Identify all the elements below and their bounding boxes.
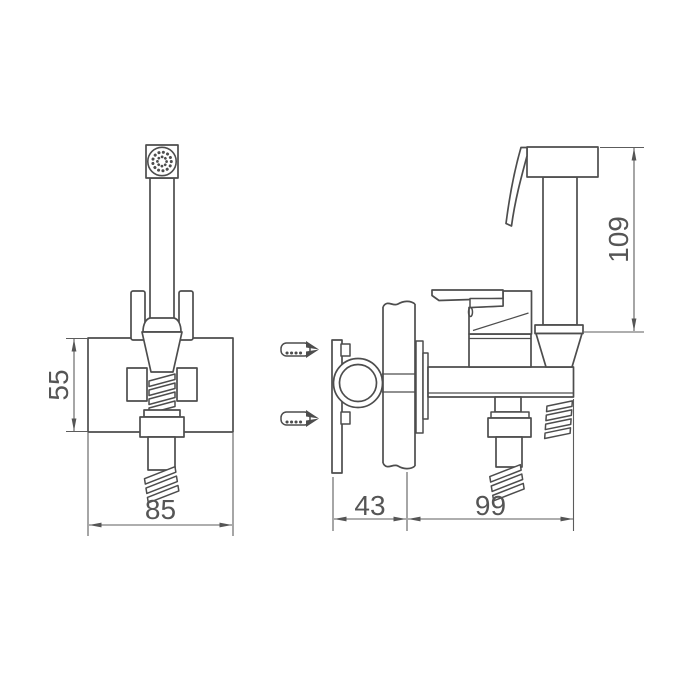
hose-nut-flange-side bbox=[491, 412, 529, 418]
arrow-up-icon bbox=[72, 339, 77, 352]
wall-section bbox=[383, 301, 415, 468]
holder-block-left bbox=[127, 368, 147, 401]
sprayer-head-side bbox=[527, 147, 598, 177]
sprayer-handle-side bbox=[543, 177, 577, 325]
holder-block-right bbox=[177, 368, 197, 401]
arrow-down-icon bbox=[632, 319, 637, 332]
technical-drawing: 55 85 bbox=[0, 0, 700, 700]
spray-face bbox=[148, 147, 176, 175]
arrow-left-icon bbox=[89, 523, 102, 528]
hose-stem-side bbox=[496, 437, 522, 467]
drawing-canvas: 55 85 bbox=[0, 0, 700, 700]
sprayer-front bbox=[146, 145, 178, 322]
hose-nut-flange-front bbox=[144, 410, 180, 417]
dim-label-99: 99 bbox=[475, 490, 506, 521]
dim-label-109: 109 bbox=[603, 216, 634, 263]
anchor-screw-bottom bbox=[281, 410, 319, 427]
dim-label-85: 85 bbox=[145, 494, 176, 525]
arrow-right-icon bbox=[561, 517, 574, 522]
front-view: 55 85 bbox=[43, 145, 233, 536]
trigger-lever bbox=[506, 148, 527, 227]
wall-break-bottom bbox=[383, 463, 415, 469]
arrow-right-icon bbox=[220, 523, 233, 528]
mounting-plate bbox=[332, 340, 342, 473]
holder-collar bbox=[535, 325, 583, 334]
sprayer-handle-front bbox=[150, 178, 174, 322]
hose-nut-front bbox=[140, 417, 184, 437]
escutcheon-flange bbox=[416, 341, 423, 433]
arrow-up-icon bbox=[632, 148, 637, 161]
plate-tab-bottom bbox=[341, 412, 350, 424]
handle-flare bbox=[143, 318, 181, 332]
arrow-left-icon bbox=[408, 517, 421, 522]
arrow-right-icon bbox=[394, 517, 407, 522]
outlet-stem bbox=[495, 397, 521, 412]
valve-body bbox=[428, 367, 574, 397]
hose-coil-right bbox=[545, 399, 573, 440]
arrow-down-icon bbox=[72, 419, 77, 432]
holder-cone bbox=[536, 334, 582, 368]
inlet-ring bbox=[334, 359, 383, 408]
wall-break-top bbox=[383, 301, 415, 307]
anchor-screw-top bbox=[281, 341, 319, 358]
hose-stem-front bbox=[148, 437, 175, 470]
dim-label-55: 55 bbox=[43, 369, 74, 400]
plate-tab-top bbox=[341, 344, 350, 356]
mixer-lever bbox=[432, 290, 532, 367]
dim-55: 55 bbox=[43, 339, 88, 432]
dim-label-43: 43 bbox=[354, 490, 385, 521]
hose-assembly-side bbox=[488, 397, 572, 501]
hose-nut-side bbox=[488, 418, 531, 437]
side-view: 109 43 99 bbox=[281, 147, 644, 531]
arrow-left-icon bbox=[334, 517, 347, 522]
dim-43: 43 bbox=[333, 472, 407, 531]
